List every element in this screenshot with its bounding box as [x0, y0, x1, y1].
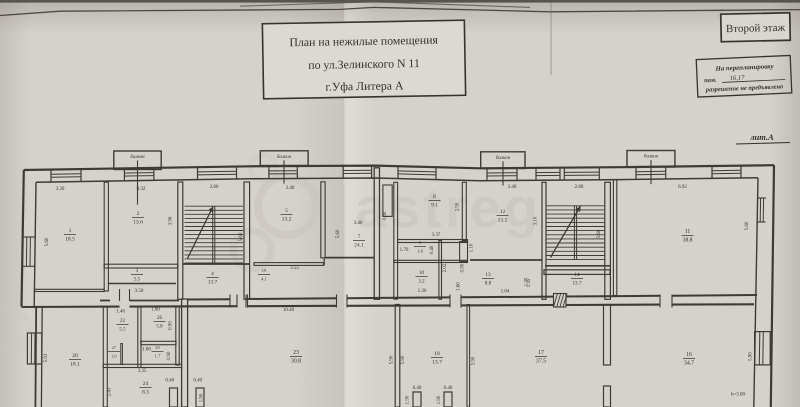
svg-text:12: 12 [500, 209, 506, 215]
svg-text:1: 1 [69, 228, 72, 234]
svg-text:0.90: 0.90 [461, 263, 466, 272]
svg-text:5.5: 5.5 [134, 278, 141, 283]
svg-text:3.55: 3.55 [290, 266, 299, 271]
svg-text:г.Уфа Литера А: г.Уфа Литера А [325, 78, 404, 93]
svg-text:1.90: 1.90 [406, 395, 411, 404]
svg-text:4.1: 4.1 [261, 277, 267, 282]
svg-text:10.40: 10.40 [283, 308, 295, 313]
svg-text:13.2: 13.2 [282, 217, 292, 223]
svg-text:18: 18 [434, 351, 440, 357]
svg-text:34.7: 34.7 [684, 361, 694, 367]
svg-text:13.5: 13.5 [498, 218, 508, 224]
svg-text:26: 26 [157, 316, 163, 321]
svg-text:5.8: 5.8 [156, 325, 163, 330]
svg-text:25: 25 [155, 345, 160, 350]
svg-text:3.96: 3.96 [169, 216, 174, 225]
svg-text:0.40: 0.40 [193, 379, 202, 384]
svg-text:24: 24 [143, 381, 149, 387]
svg-text:16,17: 16,17 [730, 74, 746, 82]
svg-text:0.90: 0.90 [167, 351, 172, 360]
svg-text:1.6: 1.6 [417, 249, 423, 254]
svg-text:3.30: 3.30 [56, 187, 65, 192]
svg-text:24.1: 24.1 [354, 243, 364, 249]
svg-text:2.80: 2.80 [210, 185, 219, 190]
svg-text:балкон: балкон [277, 155, 292, 160]
svg-text:0.40: 0.40 [413, 386, 422, 391]
svg-text:0.40: 0.40 [444, 386, 453, 391]
svg-text:23: 23 [293, 350, 299, 356]
svg-text:30.8: 30.8 [291, 359, 301, 365]
svg-text:13.6: 13.6 [133, 220, 143, 226]
svg-text:13: 13 [485, 272, 491, 278]
svg-text:2.43: 2.43 [108, 387, 113, 396]
svg-text:5.90: 5.90 [401, 355, 406, 364]
svg-text:5.60: 5.60 [597, 229, 602, 238]
svg-text:5.60: 5.60 [45, 237, 50, 246]
svg-text:План на нежилые помещения: План на нежилые помещения [289, 33, 438, 50]
svg-text:1.10: 1.10 [470, 243, 475, 252]
svg-text:3.2: 3.2 [418, 280, 425, 285]
svg-text:0.40: 0.40 [430, 245, 435, 254]
svg-text:h=3.00: h=3.00 [731, 393, 746, 398]
svg-text:0.40: 0.40 [165, 379, 174, 384]
svg-text:1.76: 1.76 [400, 248, 409, 253]
svg-text:1.60: 1.60 [457, 282, 462, 291]
svg-text:8.3: 8.3 [142, 390, 149, 396]
svg-text:1.80: 1.80 [151, 308, 160, 313]
svg-text:3.37: 3.37 [432, 233, 441, 238]
svg-text:18.5: 18.5 [65, 237, 75, 243]
svg-text:3.40: 3.40 [354, 221, 363, 226]
svg-text:5.60: 5.60 [336, 229, 341, 238]
svg-text:2: 2 [137, 211, 140, 217]
svg-text:18.1: 18.1 [70, 362, 80, 368]
svg-text:8.8: 8.8 [485, 281, 492, 287]
svg-text:1.90: 1.90 [437, 395, 442, 404]
svg-text:5: 5 [285, 208, 288, 214]
svg-text:по ул.Зелинского N 11: по ул.Зелинского N 11 [308, 56, 420, 72]
svg-text:5.90: 5.90 [472, 356, 477, 365]
svg-text:11: 11 [685, 229, 691, 235]
svg-text:балкон: балкон [644, 155, 659, 160]
svg-text:5.90: 5.90 [749, 352, 754, 361]
svg-text:5.90: 5.90 [390, 355, 395, 364]
svg-text:2.0: 2.0 [112, 354, 117, 359]
svg-text:17: 17 [538, 350, 544, 356]
svg-text:20: 20 [72, 353, 78, 359]
svg-text:0.60: 0.60 [383, 211, 388, 220]
svg-text:5.60: 5.60 [239, 232, 244, 241]
svg-text:3.40: 3.40 [286, 186, 295, 191]
svg-text:14: 14 [574, 272, 580, 278]
svg-text:8: 8 [433, 194, 436, 200]
svg-text:13.7: 13.7 [432, 360, 442, 366]
svg-text:13.7: 13.7 [572, 281, 581, 287]
svg-text:1.04: 1.04 [501, 290, 510, 295]
svg-text:37.5: 37.5 [536, 359, 546, 365]
svg-text:балкон: балкон [496, 156, 511, 161]
svg-text:1.36: 1.36 [418, 289, 427, 294]
svg-text:7: 7 [358, 234, 361, 240]
svg-text:6.92: 6.92 [678, 185, 687, 190]
svg-text:4: 4 [211, 271, 214, 277]
svg-text:38.8: 38.8 [682, 238, 692, 244]
svg-text:9.1: 9.1 [431, 203, 438, 209]
svg-text:1.35: 1.35 [527, 278, 532, 287]
svg-text:лит.А: лит.А [749, 132, 774, 142]
svg-text:5.93: 5.93 [44, 353, 49, 362]
svg-text:1.90: 1.90 [200, 393, 205, 402]
svg-text:пом.: пом. [704, 77, 717, 85]
svg-text:22: 22 [120, 319, 126, 324]
svg-text:1.80: 1.80 [142, 348, 151, 353]
svg-text:3.10: 3.10 [534, 216, 539, 225]
svg-text:3.40: 3.40 [508, 185, 517, 190]
svg-text:3.50: 3.50 [135, 289, 144, 294]
svg-text:Второй этаж: Второй этаж [726, 22, 786, 35]
svg-text:0.90: 0.90 [169, 321, 174, 330]
svg-text:5.5: 5.5 [119, 328, 126, 333]
svg-text:1.7: 1.7 [155, 354, 161, 359]
svg-text:2.02: 2.02 [443, 263, 448, 272]
svg-text:2.80: 2.80 [575, 185, 584, 190]
svg-text:0.32: 0.32 [137, 187, 146, 192]
svg-text:3.35: 3.35 [138, 369, 147, 374]
svg-text:27: 27 [112, 345, 116, 350]
svg-text:5.60: 5.60 [745, 221, 750, 230]
svg-text:16: 16 [686, 352, 692, 358]
svg-text:1.46: 1.46 [116, 310, 125, 315]
svg-text:балкон: балкон [130, 155, 145, 160]
svg-text:13.7: 13.7 [208, 280, 218, 286]
svg-text:10: 10 [419, 271, 425, 276]
svg-text:2.50: 2.50 [456, 202, 461, 211]
